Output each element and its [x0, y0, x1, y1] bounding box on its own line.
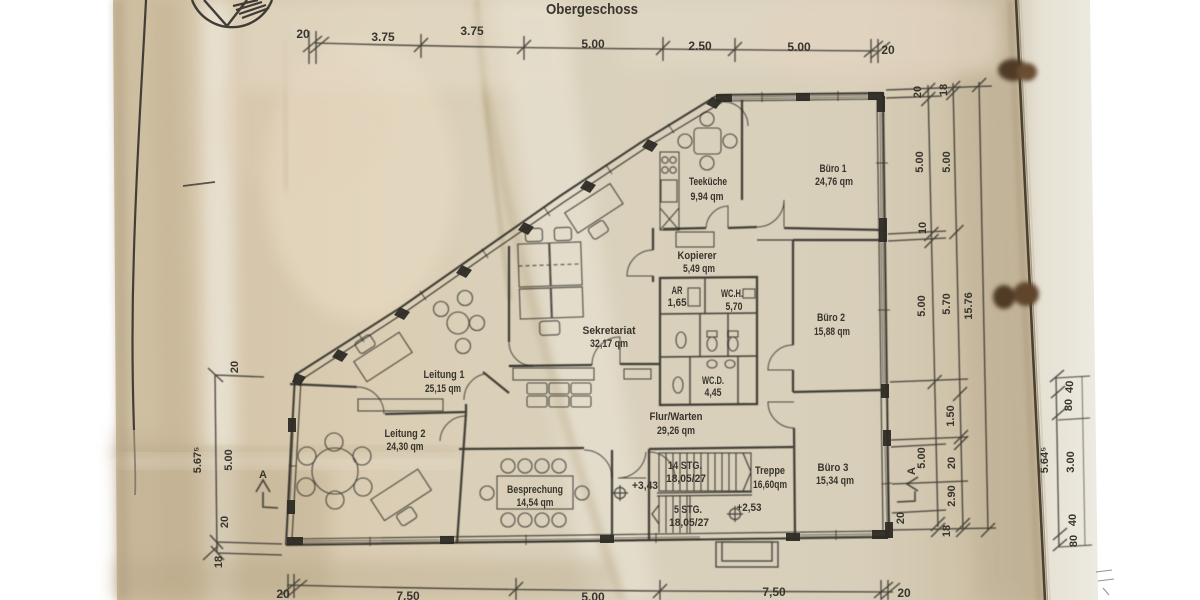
svg-text:24,76 qm: 24,76 qm: [815, 176, 853, 188]
svg-text:5.70: 5.70: [941, 293, 953, 314]
svg-text:20: 20: [296, 27, 310, 41]
svg-text:5.00: 5.00: [916, 447, 928, 468]
svg-text:18,05/27: 18,05/27: [669, 517, 709, 529]
svg-text:10: 10: [917, 222, 929, 234]
svg-text:18,05/27: 18,05/27: [666, 473, 706, 485]
svg-text:Treppe: Treppe: [755, 465, 785, 477]
svg-text:A: A: [259, 469, 267, 481]
svg-text:Sekretariat: Sekretariat: [583, 325, 636, 337]
svg-text:5.00: 5.00: [787, 40, 811, 54]
svg-text:WC.D.: WC.D.: [702, 375, 724, 387]
svg-text:15,34 qm: 15,34 qm: [816, 475, 854, 487]
svg-text:20: 20: [881, 43, 895, 57]
svg-text:40: 40: [1067, 514, 1079, 526]
svg-text:AR: AR: [672, 285, 683, 297]
svg-text:Büro 3: Büro 3: [818, 462, 849, 474]
svg-text:80: 80: [1068, 535, 1080, 547]
svg-text:15,88 qm: 15,88 qm: [814, 326, 850, 338]
svg-text:7,50: 7,50: [396, 589, 420, 600]
svg-text:5.00: 5.00: [223, 449, 235, 470]
svg-text:9,94 qm: 9,94 qm: [691, 191, 724, 203]
svg-text:1,65: 1,65: [668, 297, 687, 309]
svg-text:80: 80: [1063, 399, 1075, 411]
svg-text:14 STG.: 14 STG.: [668, 460, 702, 472]
svg-text:20: 20: [897, 586, 911, 600]
svg-text:15.76: 15.76: [963, 292, 975, 320]
svg-text:5 STG.: 5 STG.: [674, 504, 702, 516]
svg-text:20: 20: [219, 516, 231, 528]
svg-text:Flur/Warten: Flur/Warten: [650, 411, 703, 423]
svg-text:18: 18: [213, 556, 225, 568]
svg-text:3.75: 3.75: [371, 30, 395, 44]
svg-text:3.00: 3.00: [1065, 451, 1077, 472]
svg-text:32,17 qm: 32,17 qm: [590, 338, 628, 350]
svg-text:7,50: 7,50: [762, 585, 786, 599]
svg-text:5,49 qm: 5,49 qm: [683, 263, 715, 275]
svg-text:5.64⁵: 5.64⁵: [1039, 447, 1051, 474]
svg-text:Leitung 2: Leitung 2: [385, 428, 426, 440]
svg-text:18: 18: [938, 84, 950, 96]
svg-text:16,60qm: 16,60qm: [753, 479, 787, 491]
svg-text:5.67⁵: 5.67⁵: [192, 447, 204, 474]
svg-text:Besprechung: Besprechung: [507, 484, 563, 496]
svg-text:Kopierer: Kopierer: [678, 250, 718, 262]
svg-text:5.00: 5.00: [914, 151, 926, 172]
svg-text:24,30 qm: 24,30 qm: [387, 441, 424, 453]
svg-text:Büro 2: Büro 2: [817, 312, 845, 324]
svg-text:5,70: 5,70: [726, 301, 743, 313]
svg-text:5.00: 5.00: [941, 151, 953, 172]
svg-text:A: A: [906, 467, 918, 475]
svg-text:Leitung 1: Leitung 1: [424, 369, 465, 381]
svg-text:WC.H.: WC.H.: [721, 288, 743, 300]
svg-text:40: 40: [1064, 380, 1077, 393]
svg-text:3.75: 3.75: [460, 24, 484, 38]
svg-text:20: 20: [229, 361, 241, 373]
svg-text:18: 18: [941, 525, 953, 537]
svg-text:Obergeschoss: Obergeschoss: [546, 1, 638, 18]
svg-text:20: 20: [276, 587, 290, 600]
svg-text:20: 20: [912, 86, 924, 98]
svg-text:+2,53: +2,53: [737, 502, 762, 514]
svg-text:Büro 1: Büro 1: [820, 163, 847, 175]
svg-text:2.50: 2.50: [688, 39, 712, 53]
svg-text:5.00: 5.00: [581, 37, 605, 51]
svg-text:14,54 qm: 14,54 qm: [517, 497, 554, 509]
svg-text:4,45: 4,45: [705, 387, 722, 399]
svg-text:29,26 qm: 29,26 qm: [657, 425, 695, 437]
svg-text:5,00: 5,00: [581, 590, 605, 600]
svg-text:+3,43: +3,43: [632, 480, 658, 492]
svg-text:5.00: 5.00: [916, 295, 928, 316]
svg-text:1.50: 1.50: [945, 405, 957, 426]
svg-text:2.90: 2.90: [946, 485, 958, 506]
svg-text:20: 20: [946, 457, 958, 469]
svg-text:Teeküche: Teeküche: [689, 176, 727, 188]
svg-text:25,15 qm: 25,15 qm: [425, 383, 461, 395]
svg-text:20: 20: [895, 512, 907, 524]
